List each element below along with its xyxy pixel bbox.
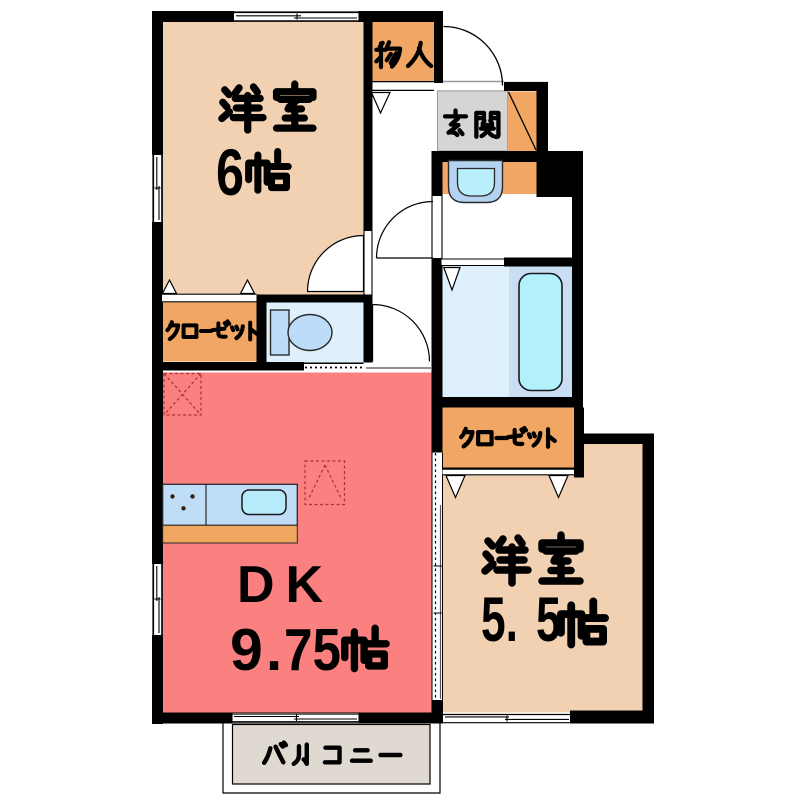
- svg-text:9.: 9.: [230, 617, 285, 683]
- svg-text:5.: 5.: [481, 585, 518, 655]
- svg-text:DK: DK: [237, 556, 334, 614]
- svg-text:75: 75: [284, 617, 341, 683]
- svg-text:6: 6: [216, 135, 244, 209]
